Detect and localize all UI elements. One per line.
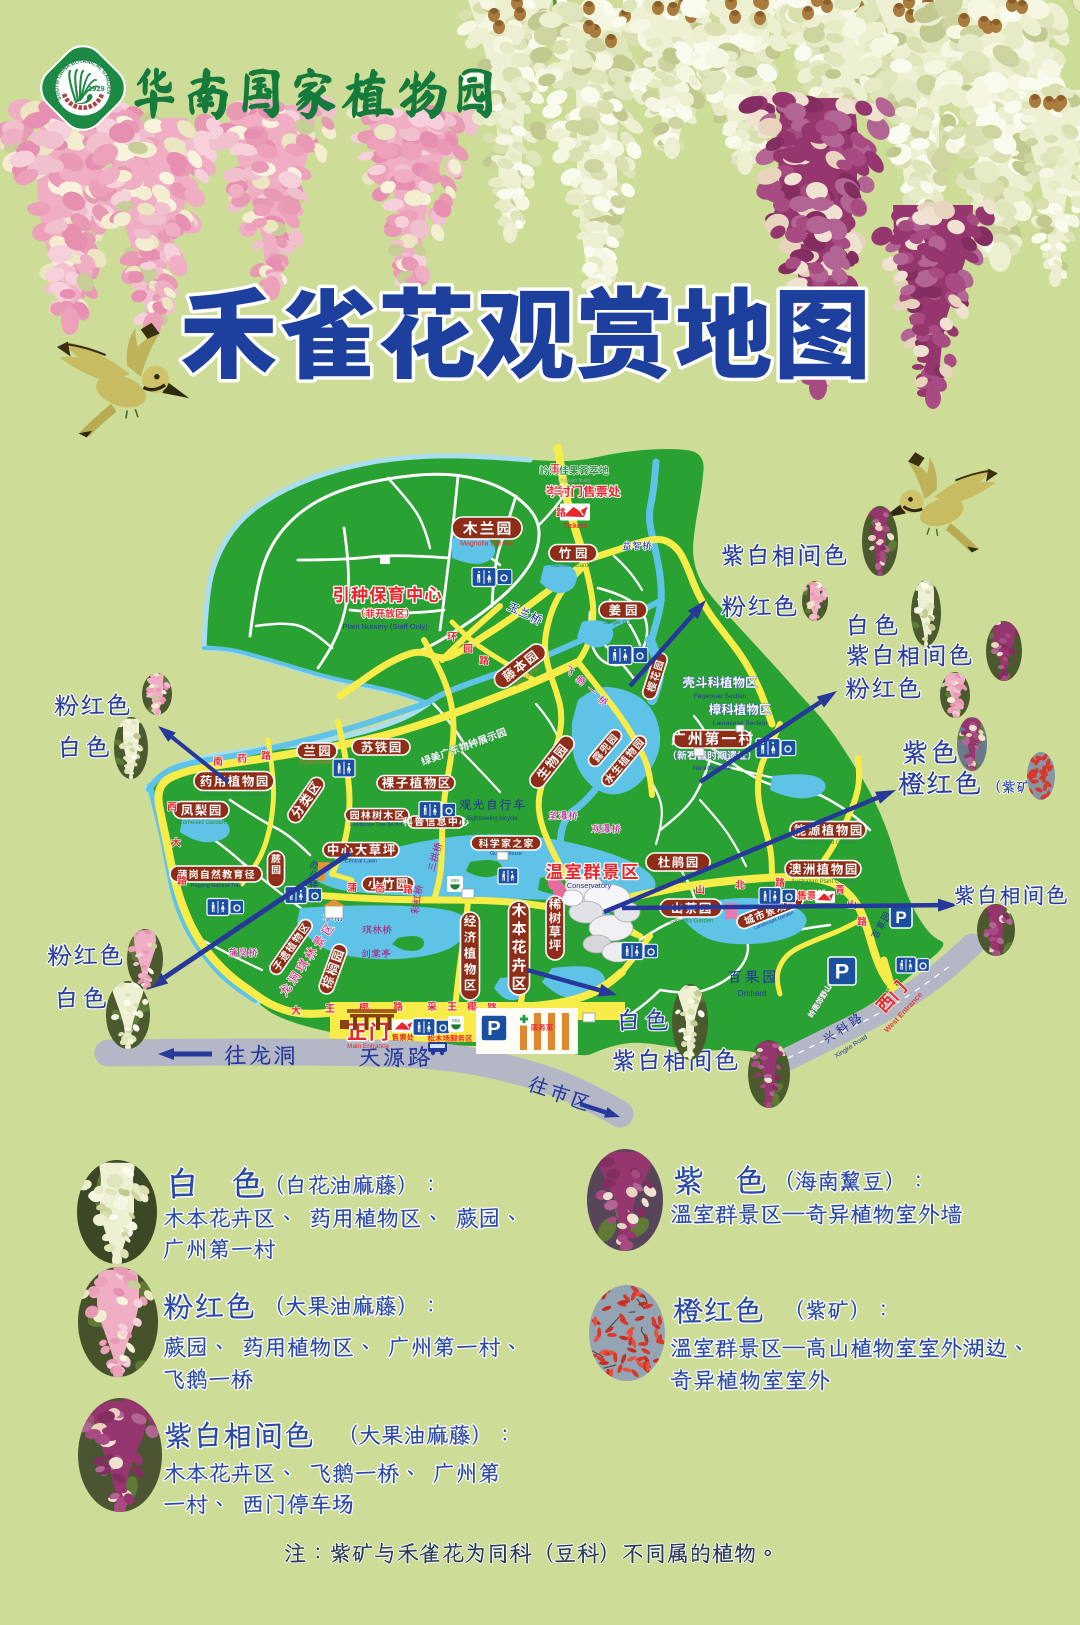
svg-text:P: P bbox=[835, 959, 849, 984]
svg-text:555: 555 bbox=[452, 1018, 460, 1024]
svg-text:Landscape Tree Section: Landscape Tree Section bbox=[350, 822, 404, 828]
svg-text:Main Entrance: Main Entrance bbox=[347, 1043, 389, 1050]
svg-text:1929: 1929 bbox=[88, 84, 105, 93]
svg-text:P: P bbox=[487, 1018, 500, 1040]
svg-text:Central Lawn: Central Lawn bbox=[345, 858, 377, 864]
svg-text:Conservatory: Conservatory bbox=[567, 881, 612, 890]
svg-text:Camellia Garden: Camellia Garden bbox=[668, 918, 713, 924]
svg-text:Lingnan fruits: Lingnan fruits bbox=[557, 478, 590, 484]
svg-text:Tickets: Tickets bbox=[563, 523, 587, 530]
svg-text:Bamboo Garden: Bamboo Garden bbox=[551, 563, 595, 569]
svg-text:Orchard: Orchard bbox=[738, 989, 767, 998]
svg-text:Plant Nursery (Staff Only): Plant Nursery (Staff Only) bbox=[342, 622, 428, 631]
svg-text:555: 555 bbox=[451, 878, 459, 884]
svg-text:Magnolia Garden: Magnolia Garden bbox=[460, 540, 514, 547]
svg-text:P: P bbox=[895, 908, 906, 927]
svg-text:Pugang Natural Trail: Pugang Natural Trail bbox=[191, 883, 241, 889]
svg-text:Orchid Garden: Orchid Garden bbox=[299, 760, 335, 766]
svg-text:Medicinal Plant Garden: Medicinal Plant Garden bbox=[203, 792, 265, 798]
svg-text:Sightseeing bicycle: Sightseeing bicycle bbox=[466, 816, 518, 822]
svg-text:Ginger Garden: Ginger Garden bbox=[603, 620, 643, 626]
svg-text:Australian Plant Garden: Australian Plant Garden bbox=[791, 879, 855, 885]
svg-text:Energy Plant Garden: Energy Plant Garden bbox=[800, 840, 856, 846]
svg-text:Fagaceae Section: Fagaceae Section bbox=[694, 693, 747, 700]
svg-text:Bromeliad Garden: Bromeliad Garden bbox=[177, 820, 226, 826]
